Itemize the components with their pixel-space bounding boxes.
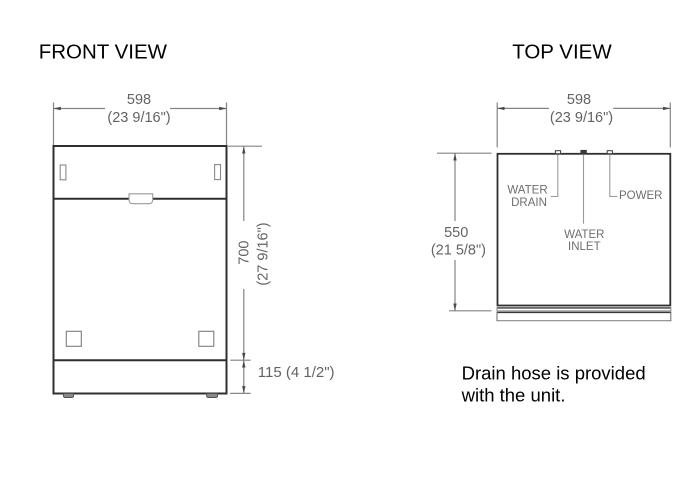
svg-text:WATER: WATER [507,185,547,197]
svg-text:INLET: INLET [568,241,601,253]
svg-text:DRAIN: DRAIN [511,197,547,209]
svg-text:115 (4 1/2"): 115 (4 1/2") [258,364,335,381]
svg-text:(23 9/16"): (23 9/16") [550,110,613,126]
svg-text:550: 550 [444,225,468,241]
svg-text:(23 9/16"): (23 9/16") [107,110,170,126]
svg-text:FRONT VIEW: FRONT VIEW [39,40,168,63]
svg-text:598: 598 [567,92,591,108]
svg-text:with the unit.: with the unit. [461,384,566,405]
svg-text:POWER: POWER [619,190,662,202]
svg-text:(21 5/8"): (21 5/8") [431,243,486,259]
svg-text:Drain hose is provided: Drain hose is provided [462,362,646,383]
svg-text:WATER: WATER [564,229,604,241]
svg-text:700: 700 [237,240,253,264]
svg-text:TOP VIEW: TOP VIEW [512,40,612,63]
svg-text:598: 598 [127,92,151,108]
svg-text:(27 9/16"): (27 9/16") [256,222,272,285]
